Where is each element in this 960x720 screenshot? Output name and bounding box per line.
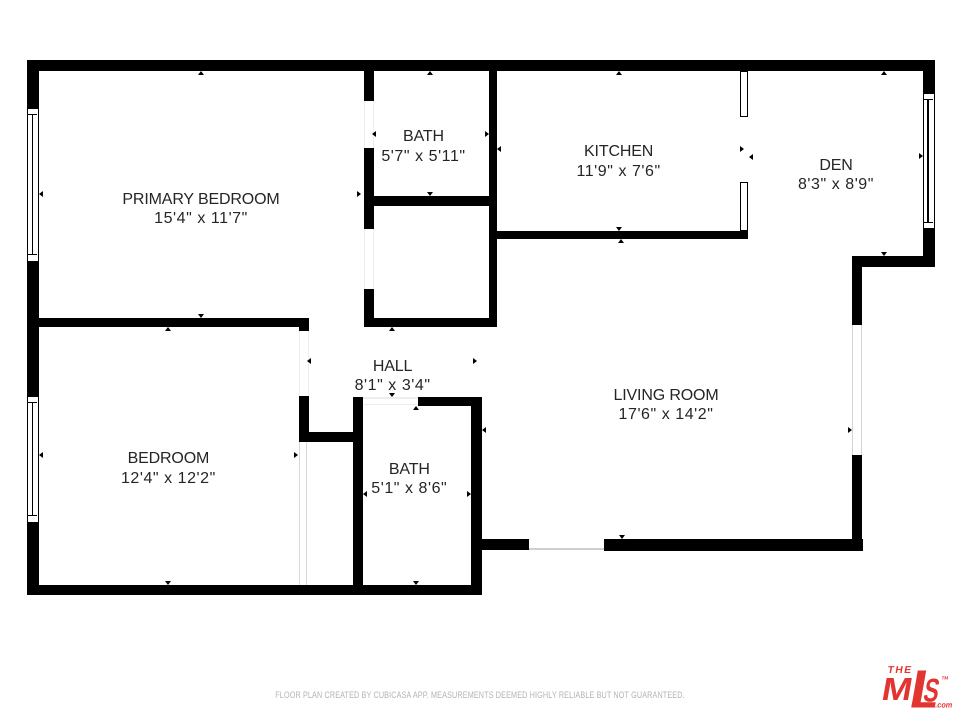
svg-text:TM: TM [941,676,949,681]
svg-text:.com: .com [935,701,954,710]
svg-text:M: M [879,671,915,707]
